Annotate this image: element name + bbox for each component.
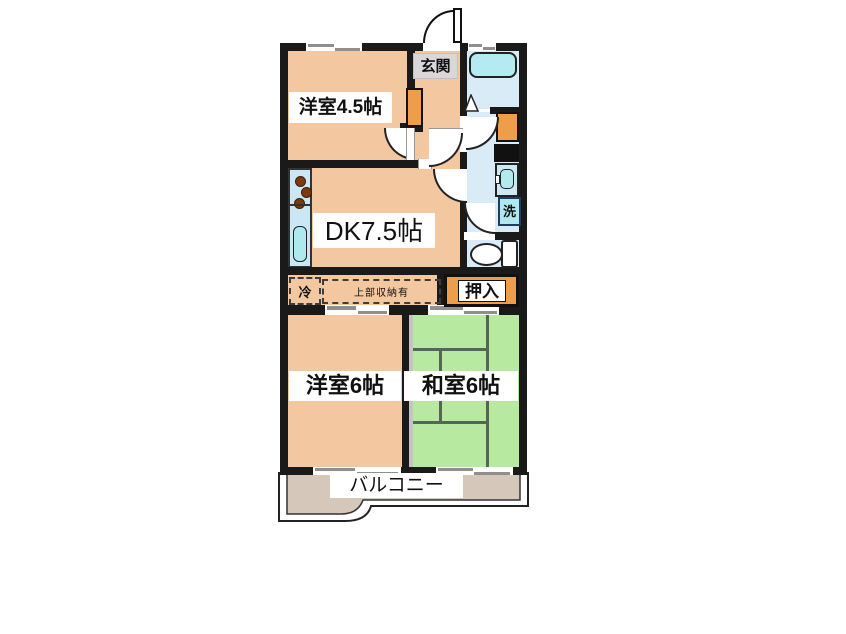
label-western-room-6: 洋室6帖 xyxy=(289,371,401,401)
tatami-line xyxy=(409,348,487,351)
shoe-cabinet xyxy=(406,88,423,127)
entrance-door-arc xyxy=(423,10,454,43)
washbasin xyxy=(495,163,519,197)
room-name: 和室6帖 xyxy=(422,375,500,397)
basin-bowl xyxy=(500,169,514,189)
stove-burner-icon xyxy=(301,187,312,198)
washroom-storage xyxy=(496,112,519,142)
room-name: 玄関 xyxy=(420,59,450,74)
label-balcony: バルコニー xyxy=(330,473,463,498)
floorplan: 洗 冷 上部収納有 xyxy=(0,0,846,634)
counter-divider xyxy=(290,204,310,206)
refrigerator-label: 冷 xyxy=(298,282,311,301)
sliding-pane xyxy=(464,311,497,315)
closet-label-box: 押入 xyxy=(458,280,506,302)
closet-oshiire: 押入 xyxy=(444,274,519,307)
room-name: バルコニー xyxy=(349,476,444,495)
wall-left xyxy=(280,43,288,475)
sliding-pane xyxy=(474,472,510,475)
washing-machine-label: 洗 xyxy=(503,205,516,218)
label-entrance: 玄関 xyxy=(413,53,458,79)
sliding-pane xyxy=(327,306,356,310)
upper-storage-label: 上部収納有 xyxy=(354,284,409,299)
toilet-bowl xyxy=(470,243,503,266)
sliding-pane xyxy=(315,468,355,471)
upper-storage-area: 上部収納有 xyxy=(322,279,441,304)
window-pane xyxy=(335,48,360,51)
bathtub xyxy=(469,52,517,78)
pipe-space xyxy=(494,144,519,162)
wall-west45-dk xyxy=(280,160,418,168)
room-name: 洋室6帖 xyxy=(306,375,384,397)
entrance-door-leaf xyxy=(453,8,462,43)
sliding-pane xyxy=(438,468,473,471)
kitchen-sink xyxy=(293,226,307,262)
refrigerator-space: 冷 xyxy=(289,277,321,305)
bath-door-triangle-icon xyxy=(464,94,479,112)
basin-faucet xyxy=(495,175,500,184)
label-japanese-room-6: 和室6帖 xyxy=(404,371,518,401)
toilet-tank xyxy=(501,240,518,268)
door-leaf-west45 xyxy=(406,128,415,160)
kitchen-counter xyxy=(288,168,312,268)
label-western-room-4-5: 洋室4.5帖 xyxy=(289,92,392,123)
closet-label: 押入 xyxy=(465,283,499,300)
room-name: DK7.5帖 xyxy=(325,218,423,244)
tatami-line xyxy=(409,421,487,424)
sliding-pane xyxy=(358,311,387,315)
window-pane xyxy=(308,44,334,47)
washing-machine-space: 洗 xyxy=(498,197,521,226)
room-name: 洋室4.5帖 xyxy=(299,98,382,117)
label-dk: DK7.5帖 xyxy=(313,213,435,248)
window-pane xyxy=(469,44,482,47)
entrance-opening xyxy=(423,43,460,51)
stove-burner-icon xyxy=(295,176,306,187)
window-pane xyxy=(483,47,495,50)
wall-hall-washroom xyxy=(460,43,467,280)
